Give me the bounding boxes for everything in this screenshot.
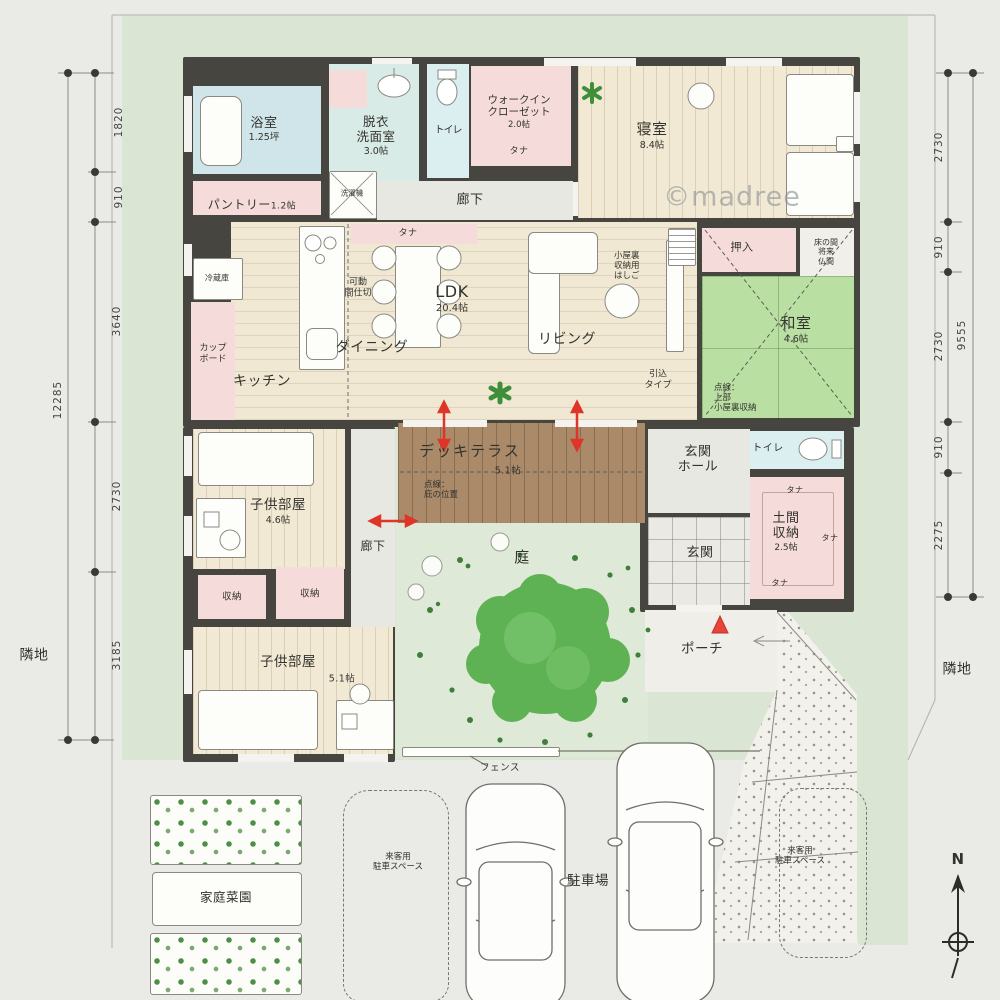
dining-label: ダイニング: [336, 340, 409, 357]
guest-car-outline-2: [779, 788, 867, 958]
dim-right-2275: 2275: [933, 520, 945, 551]
kids-2-label: 子供部屋: [260, 655, 316, 671]
living-label: リビング: [538, 332, 596, 349]
window: [726, 58, 782, 66]
window: [184, 244, 192, 276]
doma-tana-right: タナ: [822, 533, 839, 542]
room-label-washitsu: 和室 4.6帖: [780, 315, 811, 345]
bathtub: [200, 96, 242, 166]
fence-label: フェンス: [480, 762, 520, 773]
dining-tana-label: タナ: [398, 229, 417, 240]
window: [184, 96, 192, 152]
room-label-doma: 土間 収納 2.5帖: [772, 511, 799, 553]
datsui-tana-shelf: [329, 70, 367, 108]
loft-ladder-icon: [668, 228, 696, 266]
wic-tana-label: タナ: [509, 147, 528, 158]
desk-kids-2: [336, 700, 394, 750]
room-label-bath: 浴室 1.25坪: [249, 116, 280, 144]
room-toilet-1: [427, 64, 469, 178]
window: [184, 436, 192, 476]
dim-left-3185: 3185: [111, 640, 123, 671]
dim-right-2730b: 2730: [933, 331, 945, 362]
loft-ladder-label: 小屋裏 収納用 はしご: [614, 251, 640, 281]
neighbor-right-label: 隣地: [943, 662, 972, 679]
room-label-wic: ウォークイン クローゼット 2.0帖: [488, 94, 551, 130]
corridor-top-label: 廊下: [456, 192, 483, 207]
dim-right-total: 9555: [956, 320, 968, 351]
dining-table: [395, 246, 441, 348]
parking-label: 駐車場: [567, 874, 609, 890]
kids-2-size: 5.1帖: [329, 673, 356, 684]
sliding-door-gap: [403, 419, 487, 427]
doma-tana-top: タナ: [787, 485, 804, 494]
dim-right-910a: 910: [933, 235, 945, 258]
genkan: [648, 517, 750, 605]
door-gap: [344, 754, 388, 762]
kitchen-sink: [306, 328, 338, 360]
sofa-seat: [528, 232, 598, 274]
washitsu-note: 点線： 上部 小屋裏収納: [714, 383, 757, 413]
corridor-left-label: 廊下: [360, 539, 385, 553]
storage-1-label: 収納: [222, 591, 242, 602]
bath-size: 1.25坪: [249, 133, 280, 144]
nightstand: [836, 136, 854, 152]
neighbor-left-label: 隣地: [20, 648, 49, 665]
deck-note: 点線： 庇の位置: [424, 480, 458, 500]
garden-label: 庭: [514, 549, 530, 567]
veg-bed-2: [150, 933, 302, 995]
guest-car-outline-1: [343, 790, 449, 1000]
bed-kids-2: [198, 690, 318, 750]
dim-right-2730a: 2730: [933, 132, 945, 163]
dim-left-total: 12285: [52, 381, 64, 419]
room-label-kids-1: 子供部屋 4.6帖: [250, 498, 306, 526]
room-label-pantry: パントリー1.2帖: [208, 184, 296, 213]
washer-label: 洗濯機: [341, 190, 364, 199]
room-label-toilet-1: トイレ: [435, 125, 462, 137]
porch-label: ポーチ: [681, 642, 723, 658]
desk-kids-1: [196, 498, 246, 558]
window: [544, 58, 636, 66]
room-label-ldk: LDK 20.4帖: [435, 283, 468, 315]
dim-right-910b: 910: [933, 435, 945, 458]
veg-garden-label: 家庭菜園: [200, 891, 252, 906]
dim-left-2730: 2730: [111, 481, 123, 512]
watermark: ©madree: [663, 182, 801, 213]
room-label-bedroom: 寝室 8.4帖: [636, 121, 667, 151]
storage-2-label: 収納: [300, 588, 320, 599]
window: [184, 650, 192, 694]
genkan-label: 玄関: [686, 545, 713, 560]
bed-kids-1: [198, 432, 314, 486]
guest-parking-2-label: 来客用 駐車スペース: [775, 846, 825, 866]
room-label-toilet-2: トイレ: [752, 443, 784, 455]
room-label-datsui: 脱衣 洗面室 3.0帖: [356, 115, 395, 157]
guest-parking-1-label: 来客用 駐車スペース: [373, 852, 423, 872]
compass-north-label: N: [951, 851, 964, 869]
dim-left-910: 910: [113, 185, 125, 208]
kitchen-label: キッチン: [233, 374, 291, 391]
dim-left-1820: 1820: [113, 107, 125, 138]
fence-bar: [402, 747, 560, 757]
window: [184, 516, 192, 556]
veg-bed-1: [150, 795, 302, 865]
cupboard-label: カップ ボード: [199, 343, 226, 364]
deck-label: デッキテラス: [419, 443, 521, 461]
fridge-label: 冷蔵庫: [205, 273, 229, 282]
doma-tana-bottom: タナ: [772, 578, 789, 587]
tokonoma-label: 床の間 将来 仏間: [814, 238, 838, 266]
partition-label: 可動 間仕切: [344, 277, 371, 298]
window: [238, 754, 294, 762]
genkan-hall-label: 玄関 ホール: [678, 445, 719, 476]
entrance-door-gap: [676, 604, 722, 612]
dim-left-3640: 3640: [111, 306, 123, 337]
floor-plan-canvas: 浴室 1.25坪 パントリー1.2帖 脱衣 洗面室 3.0帖 洗濯機 トイレ 廊…: [0, 0, 1000, 1000]
corridor-left: [351, 429, 395, 627]
oshiire-label: 押入: [731, 242, 754, 255]
sliding-door-gap: [555, 419, 637, 427]
bath-name: 浴室: [250, 116, 277, 131]
sliding-door-label: 引込 タイプ: [644, 369, 671, 390]
deck-size: 5.1帖: [495, 465, 522, 476]
